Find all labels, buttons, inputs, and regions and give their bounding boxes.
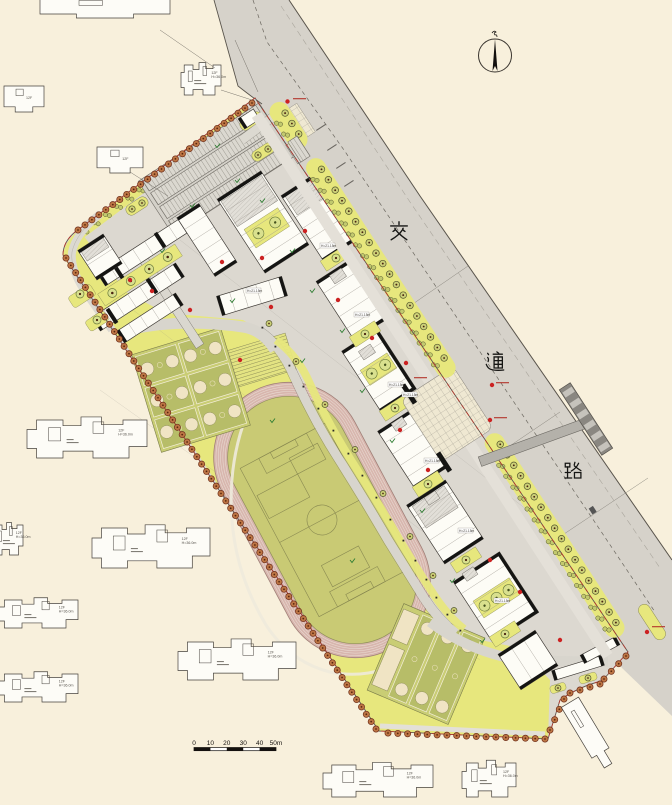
svg-text:H=21.15m: H=21.15m <box>321 244 337 248</box>
svg-text:H=36.0m: H=36.0m <box>407 776 422 780</box>
svg-text:H=21.15m: H=21.15m <box>247 289 263 293</box>
svg-text:H=36.0m: H=36.0m <box>16 535 31 539</box>
svg-text:H=21.15m: H=21.15m <box>389 383 405 387</box>
svg-text:0: 0 <box>192 740 196 747</box>
svg-text:12F: 12F <box>26 96 33 100</box>
svg-text:30: 30 <box>240 740 248 747</box>
svg-text:H=36.0m: H=36.0m <box>211 75 226 79</box>
svg-text:20: 20 <box>223 740 231 747</box>
svg-text:H=36.0m: H=36.0m <box>268 654 283 658</box>
svg-text:H=21.15m: H=21.15m <box>355 313 371 317</box>
svg-text:10: 10 <box>207 740 215 747</box>
svg-text:12F: 12F <box>122 157 129 161</box>
svg-text:50m: 50m <box>270 740 283 747</box>
svg-text:H=36.0m: H=36.0m <box>118 432 133 436</box>
svg-text:40: 40 <box>256 740 264 747</box>
svg-text:H=21.15m: H=21.15m <box>403 393 419 397</box>
svg-text:H=36.0m: H=36.0m <box>182 541 197 545</box>
svg-text:H=36.0m: H=36.0m <box>59 609 74 613</box>
svg-text:H=21.15m: H=21.15m <box>425 459 441 463</box>
svg-text:H=21.15m: H=21.15m <box>459 529 475 533</box>
svg-text:H=36.0m: H=36.0m <box>59 683 74 687</box>
svg-text:H=21.15m: H=21.15m <box>495 599 511 603</box>
svg-text:H=36.0m: H=36.0m <box>503 774 518 778</box>
